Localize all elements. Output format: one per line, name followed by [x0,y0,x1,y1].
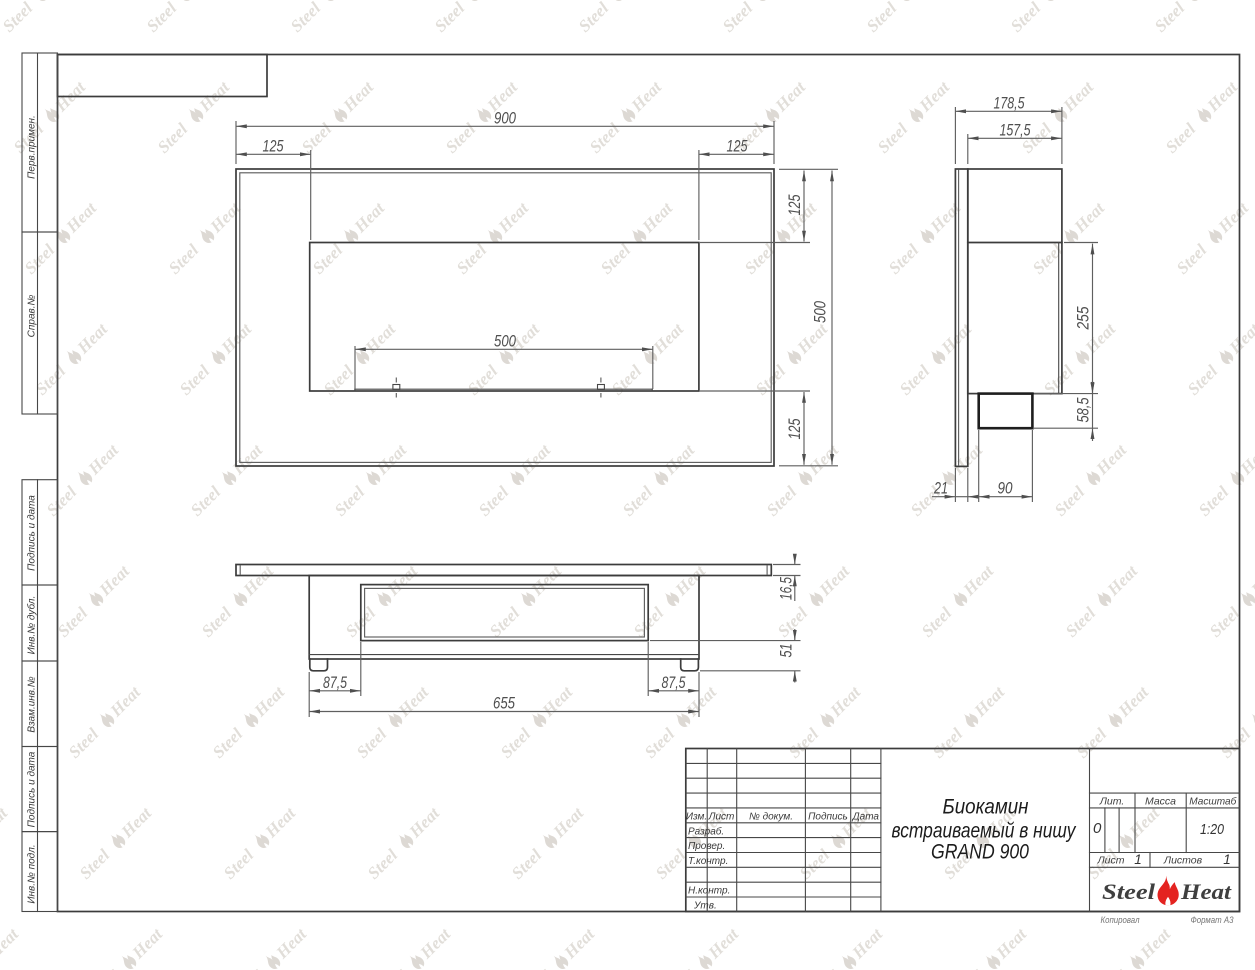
svg-text:Heat: Heat [1125,803,1164,842]
svg-text:Heat: Heat [815,561,854,600]
svg-text:Подпись: Подпись [808,811,848,822]
svg-text:Steel: Steel [287,0,325,36]
svg-text:125: 125 [727,137,748,156]
svg-text:Steel: Steel [863,0,901,36]
svg-text:Heat: Heat [339,77,378,116]
svg-text:Steel: Steel [796,845,834,883]
svg-text:Heat: Heat [272,924,311,963]
svg-text:Steel: Steel [1073,724,1111,762]
svg-text:Heat: Heat [937,319,976,358]
svg-text:Дата: Дата [852,811,880,822]
svg-text:Steel: Steel [1195,482,1233,520]
svg-text:Steel: Steel [375,966,413,970]
svg-text:Изм.: Изм. [686,811,707,822]
svg-text:Steel: Steel [1151,0,1189,36]
svg-text:Steel: Steel [641,724,679,762]
svg-text:Steel: Steel [1062,603,1100,641]
svg-text:87,5: 87,5 [323,673,347,692]
svg-text:Steel: Steel [575,0,613,36]
svg-text:Heat: Heat [239,561,278,600]
svg-text:Heat: Heat [549,803,588,842]
svg-text:Steel: Steel [154,119,192,157]
svg-text:Инв.№ дубл.: Инв.№ дубл. [26,596,38,655]
svg-text:Heat: Heat [73,319,112,358]
svg-text:Heat: Heat [372,440,411,479]
svg-text:Справ.№: Справ.№ [27,294,38,337]
svg-text:Листов: Листов [1163,855,1203,867]
svg-text:Steel: Steel [874,119,912,157]
svg-text:Steel: Steel [1095,966,1133,970]
svg-text:Steel: Steel [431,0,469,36]
svg-text:Steel: Steel [486,603,524,641]
svg-text:Heat: Heat [1059,77,1098,116]
svg-text:Steel: Steel [663,966,701,970]
svg-text:Heat: Heat [228,440,267,479]
svg-text:встраиваемый в нишу: встраиваемый в нишу [892,820,1077,843]
svg-text:Steel: Steel [464,361,502,399]
svg-text:Steel: Steel [1029,240,1067,278]
svg-text:Т.контр.: Т.контр. [688,856,728,867]
svg-text:Heat: Heat [560,924,599,963]
svg-text:Steel: Steel [320,361,358,399]
svg-text:Heat: Heat [793,319,832,358]
svg-text:Steel: Steel [1173,240,1211,278]
svg-text:Heat: Heat [106,682,145,721]
svg-text:Копировал: Копировал [1101,915,1141,926]
svg-text:1:20: 1:20 [1200,821,1225,838]
svg-text:Heat: Heat [1214,198,1253,237]
svg-text:Steel: Steel [475,482,513,520]
svg-text:Лист: Лист [1096,855,1124,867]
svg-text:Heat: Heat [0,803,12,842]
svg-text:Провер.: Провер. [688,841,725,852]
svg-text:Лист: Лист [708,811,735,822]
svg-text:Heat: Heat [848,924,887,963]
svg-text:Подпись и дата: Подпись и дата [27,751,38,827]
svg-text:500: 500 [494,331,516,350]
svg-text:655: 655 [493,694,515,713]
svg-text:Steel: Steel [1162,119,1200,157]
svg-text:Heat: Heat [250,682,289,721]
svg-text:Heat: Heat [416,924,455,963]
svg-text:Heat: Heat [992,924,1031,963]
svg-text:Heat: Heat [970,682,1009,721]
svg-text:87,5: 87,5 [662,673,686,692]
svg-text:Heat: Heat [128,924,167,963]
svg-text:Heat: Heat [704,924,743,963]
svg-text:157,5: 157,5 [1000,120,1031,139]
svg-text:Steel: Steel [220,845,258,883]
svg-text:Heat: Heat [826,682,865,721]
svg-text:Heat: Heat [394,682,433,721]
svg-text:Heat: Heat [1136,924,1175,963]
svg-text:Steel: Steel [896,361,934,399]
svg-text:Steel: Steel [65,724,103,762]
svg-text:Steel: Steel [231,966,269,970]
svg-text:Steel: Steel [774,603,812,641]
svg-text:Heat: Heat [915,77,954,116]
svg-text:Heat: Heat [516,440,555,479]
svg-text:Steel: Steel [497,724,535,762]
svg-text:Steel: Steel [442,119,480,157]
svg-text:Подпись и дата: Подпись и дата [27,495,38,571]
svg-text:255: 255 [1074,306,1093,330]
svg-text:Heat: Heat [1070,198,1109,237]
svg-text:Heat: Heat [671,561,710,600]
svg-text:Steel: Steel [176,361,214,399]
svg-text:Н.контр.: Н.контр. [688,886,730,897]
svg-text:Heat: Heat [261,803,300,842]
svg-text:Steel: Steel [209,724,247,762]
svg-text:Взам.инв.№: Взам.инв.№ [27,676,38,732]
svg-text:Steel: Steel [719,0,757,36]
svg-text:Heat: Heat [0,924,23,963]
svg-text:Steel: Steel [43,482,81,520]
svg-text:Steel: Steel [1051,482,1089,520]
svg-text:Steel: Steel [1184,361,1222,399]
svg-text:Heat: Heat [1092,440,1131,479]
svg-text:Steel: Steel [453,240,491,278]
svg-text:51: 51 [777,644,796,658]
svg-text:125: 125 [785,194,804,215]
svg-text:90: 90 [998,479,1013,498]
svg-text:Steel: Steel [608,361,646,399]
svg-text:Heat: Heat [538,682,577,721]
svg-text:Heat: Heat [627,77,666,116]
svg-text:Steel: Steel [807,966,845,970]
svg-text:900: 900 [494,109,516,128]
svg-text:Steel: Steel [951,966,989,970]
svg-text:Heat: Heat [405,803,444,842]
svg-text:Steel: Steel [187,482,225,520]
svg-text:Steel: Steel [619,482,657,520]
svg-text:№ докум.: № докум. [749,811,793,822]
svg-text:Steel: Steel [785,724,823,762]
svg-text:Инв.№ подл.: Инв.№ подл. [27,844,38,903]
svg-text:Heat: Heat [206,198,245,237]
svg-text:Steel: Steel [198,603,236,641]
svg-text:125: 125 [785,418,804,439]
svg-text:Steel: Steel [87,966,125,970]
svg-text:Steel: Steel [21,240,59,278]
svg-text:Steel: Steel [1102,879,1156,904]
svg-text:Heat: Heat [527,561,566,600]
svg-text:Биокамин: Биокамин [943,796,1029,819]
svg-text:Steel: Steel [1206,603,1244,641]
svg-text:Steel: Steel [929,724,967,762]
svg-text:Heat: Heat [1180,879,1232,904]
svg-text:Heat: Heat [660,440,699,479]
svg-text:Heat: Heat [117,803,156,842]
svg-text:Масса: Масса [1145,796,1176,808]
svg-text:500: 500 [811,301,830,323]
svg-text:Heat: Heat [1203,77,1242,116]
svg-text:Перв.примен.: Перв.примен. [27,115,38,179]
svg-text:Масштаб: Масштаб [1189,796,1237,808]
svg-text:Heat: Heat [804,440,843,479]
svg-text:Heat: Heat [383,561,422,600]
svg-text:Steel: Steel [1217,724,1255,762]
svg-text:Steel: Steel [76,845,114,883]
svg-text:Steel: Steel [165,240,203,278]
svg-text:Steel: Steel [885,240,923,278]
svg-text:Steel: Steel [331,482,369,520]
svg-text:GRAND 900: GRAND 900 [931,841,1029,864]
svg-text:Heat: Heat [494,198,533,237]
svg-text:58,5: 58,5 [1074,397,1093,422]
svg-text:178,5: 178,5 [994,93,1025,112]
svg-text:Утв.: Утв. [693,900,717,911]
svg-text:Steel: Steel [597,240,635,278]
svg-text:Heat: Heat [62,198,101,237]
svg-text:Heat: Heat [1114,682,1153,721]
svg-text:Steel: Steel [519,966,557,970]
svg-text:Steel: Steel [353,724,391,762]
svg-text:Steel: Steel [0,0,36,36]
svg-text:Heat: Heat [638,198,677,237]
svg-text:Heat: Heat [350,198,389,237]
svg-text:Steel: Steel [364,845,402,883]
svg-text:0: 0 [1093,820,1102,837]
svg-text:Heat: Heat [959,561,998,600]
svg-text:Steel: Steel [763,482,801,520]
svg-text:Heat: Heat [1103,561,1142,600]
svg-text:Steel: Steel [508,845,546,883]
svg-text:Steel: Steel [652,845,690,883]
svg-text:Steel: Steel [309,240,347,278]
svg-text:Heat: Heat [0,682,1,721]
svg-text:Heat: Heat [649,319,688,358]
svg-text:Steel: Steel [143,0,181,36]
svg-text:Steel: Steel [1007,0,1045,36]
svg-text:Steel: Steel [54,603,92,641]
svg-text:Heat: Heat [682,682,721,721]
svg-text:Heat: Heat [84,440,123,479]
svg-text:21: 21 [933,479,948,498]
svg-text:Steel: Steel [741,240,779,278]
svg-text:Steel: Steel [298,119,336,157]
svg-text:1: 1 [1134,852,1142,867]
svg-text:1: 1 [1223,852,1231,867]
svg-text:Steel: Steel [918,603,956,641]
svg-text:Heat: Heat [361,319,400,358]
svg-text:125: 125 [263,137,284,156]
svg-text:Steel: Steel [586,119,624,157]
svg-text:Разраб.: Разраб. [688,825,724,837]
svg-text:16,5: 16,5 [777,577,796,600]
svg-text:Heat: Heat [771,77,810,116]
svg-text:Формат А3: Формат А3 [1191,915,1235,926]
svg-text:Heat: Heat [95,561,134,600]
svg-text:Лит.: Лит. [1099,796,1125,808]
